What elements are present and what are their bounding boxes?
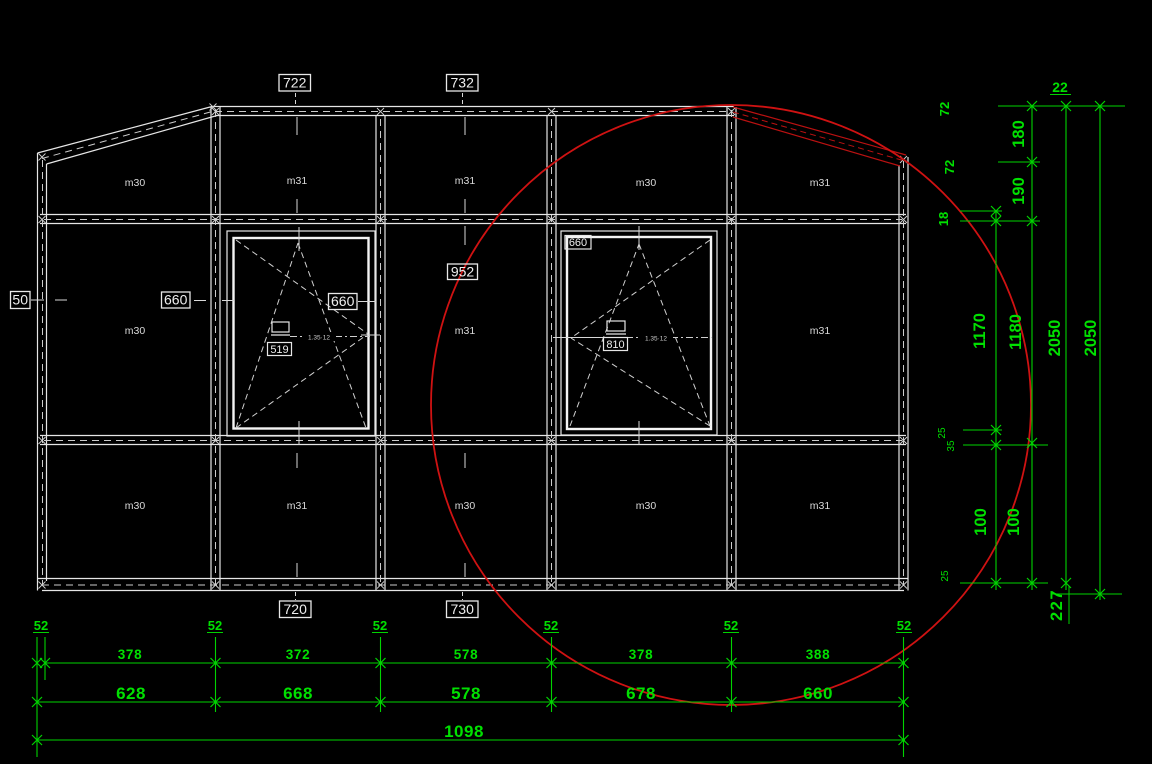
svg-text:180: 180 <box>1010 120 1028 148</box>
svg-text:m31: m31 <box>810 500 831 512</box>
svg-text:660: 660 <box>331 293 355 309</box>
svg-text:2050: 2050 <box>1046 320 1064 357</box>
svg-text:25: 25 <box>937 427 948 439</box>
svg-text:378: 378 <box>629 647 654 662</box>
svg-text:722: 722 <box>283 75 307 91</box>
svg-text:720: 720 <box>284 601 308 617</box>
svg-text:1.35·12: 1.35·12 <box>308 335 330 342</box>
svg-text:1170: 1170 <box>971 313 989 349</box>
svg-text:52: 52 <box>208 618 222 633</box>
svg-text:1098: 1098 <box>444 722 484 741</box>
svg-text:227: 227 <box>1048 589 1066 621</box>
svg-text:72: 72 <box>937 102 952 116</box>
svg-text:m30: m30 <box>636 500 657 512</box>
svg-text:52: 52 <box>373 618 387 633</box>
svg-text:1.35·12: 1.35·12 <box>645 336 667 343</box>
svg-text:578: 578 <box>451 684 481 703</box>
svg-text:m30: m30 <box>125 325 146 337</box>
svg-text:730: 730 <box>451 601 475 617</box>
svg-text:678: 678 <box>626 684 656 703</box>
svg-text:m31: m31 <box>455 175 476 187</box>
svg-text:660: 660 <box>803 684 833 703</box>
svg-text:35: 35 <box>946 440 957 452</box>
svg-text:m30: m30 <box>636 177 657 189</box>
svg-text:m31: m31 <box>287 175 308 187</box>
svg-text:22: 22 <box>1052 79 1068 95</box>
svg-text:372: 372 <box>286 647 311 662</box>
svg-text:m31: m31 <box>810 177 831 189</box>
svg-text:52: 52 <box>544 618 558 633</box>
svg-text:m30: m30 <box>125 177 146 189</box>
svg-text:100: 100 <box>972 508 990 536</box>
svg-text:2050: 2050 <box>1082 320 1100 357</box>
svg-text:810: 810 <box>606 339 624 351</box>
svg-text:668: 668 <box>283 684 313 703</box>
svg-text:100: 100 <box>1005 508 1023 536</box>
svg-text:190: 190 <box>1010 177 1028 205</box>
svg-text:m31: m31 <box>287 500 308 512</box>
svg-text:519: 519 <box>270 344 288 356</box>
svg-text:50: 50 <box>12 292 28 308</box>
svg-text:732: 732 <box>451 75 475 91</box>
svg-text:660: 660 <box>164 292 188 308</box>
svg-text:25: 25 <box>940 570 951 582</box>
svg-text:52: 52 <box>897 618 911 633</box>
svg-text:m31: m31 <box>455 325 476 337</box>
svg-text:952: 952 <box>451 264 475 280</box>
svg-text:660: 660 <box>569 237 587 249</box>
svg-text:388: 388 <box>806 647 831 662</box>
svg-text:m30: m30 <box>125 500 146 512</box>
svg-text:72: 72 <box>942 160 957 174</box>
svg-text:18: 18 <box>936 212 951 226</box>
svg-text:52: 52 <box>34 618 48 633</box>
svg-text:578: 578 <box>454 647 479 662</box>
svg-text:628: 628 <box>116 684 146 703</box>
svg-text:m30: m30 <box>455 500 476 512</box>
svg-text:1180: 1180 <box>1007 314 1025 350</box>
svg-text:52: 52 <box>724 618 738 633</box>
svg-text:m31: m31 <box>810 325 831 337</box>
svg-text:378: 378 <box>118 647 143 662</box>
